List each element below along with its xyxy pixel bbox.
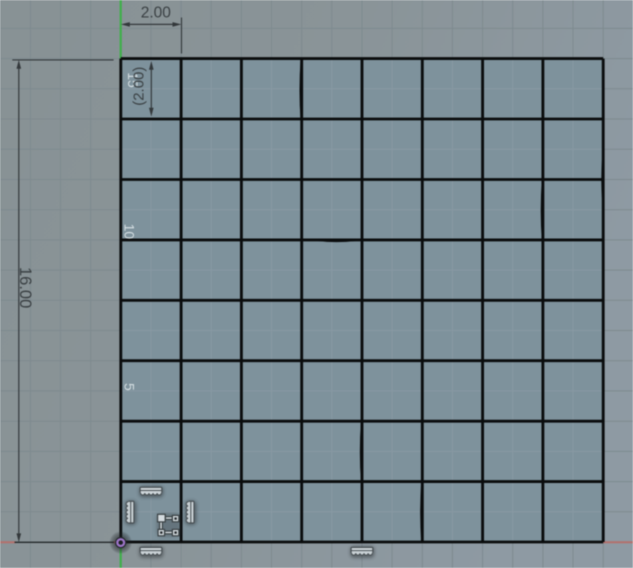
svg-text:2.00: 2.00 [141,5,172,22]
svg-text:(2.00): (2.00) [131,67,148,106]
svg-text:5: 5 [122,383,138,391]
svg-text:10: 10 [122,224,138,240]
